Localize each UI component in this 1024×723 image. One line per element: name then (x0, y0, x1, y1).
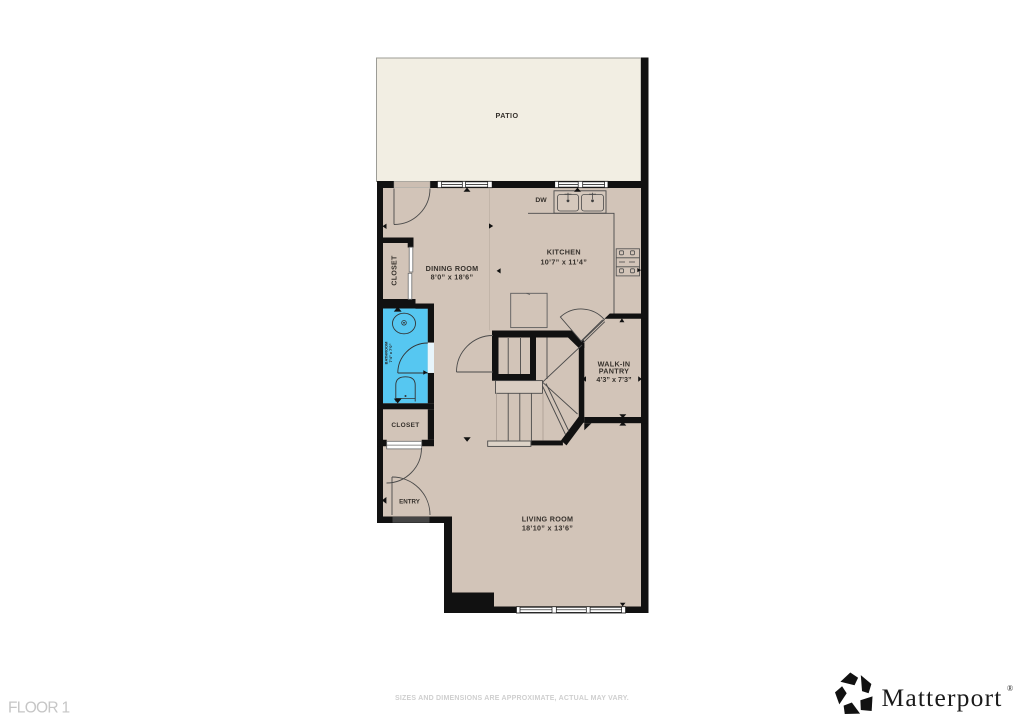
svg-text:KITCHEN: KITCHEN (547, 247, 581, 256)
svg-text:10’7” x 11’4”: 10’7” x 11’4” (540, 257, 587, 266)
svg-text:LIVING ROOM: LIVING ROOM (522, 514, 574, 523)
svg-text:DW: DW (535, 197, 547, 204)
svg-text:FLOOR 1: FLOOR 1 (8, 700, 70, 717)
svg-text:®: ® (1007, 684, 1013, 693)
svg-text:CLOSET: CLOSET (391, 255, 398, 286)
svg-text:ENTRY: ENTRY (399, 498, 421, 505)
svg-text:4’3” x 7’3”: 4’3” x 7’3” (596, 375, 632, 384)
svg-text:SIZES AND DIMENSIONS ARE APPRO: SIZES AND DIMENSIONS ARE APPROXIMATE, AC… (395, 695, 629, 702)
svg-text:7’4” x 7’0”: 7’4” x 7’0” (388, 343, 393, 362)
svg-text:CLOSET: CLOSET (391, 422, 419, 429)
svg-text:PATIO: PATIO (496, 111, 519, 120)
svg-text:18’10” x 13’6”: 18’10” x 13’6” (522, 523, 573, 532)
svg-text:Matterport: Matterport (882, 683, 1003, 712)
svg-text:8’0” x 18’6”: 8’0” x 18’6” (431, 272, 474, 281)
